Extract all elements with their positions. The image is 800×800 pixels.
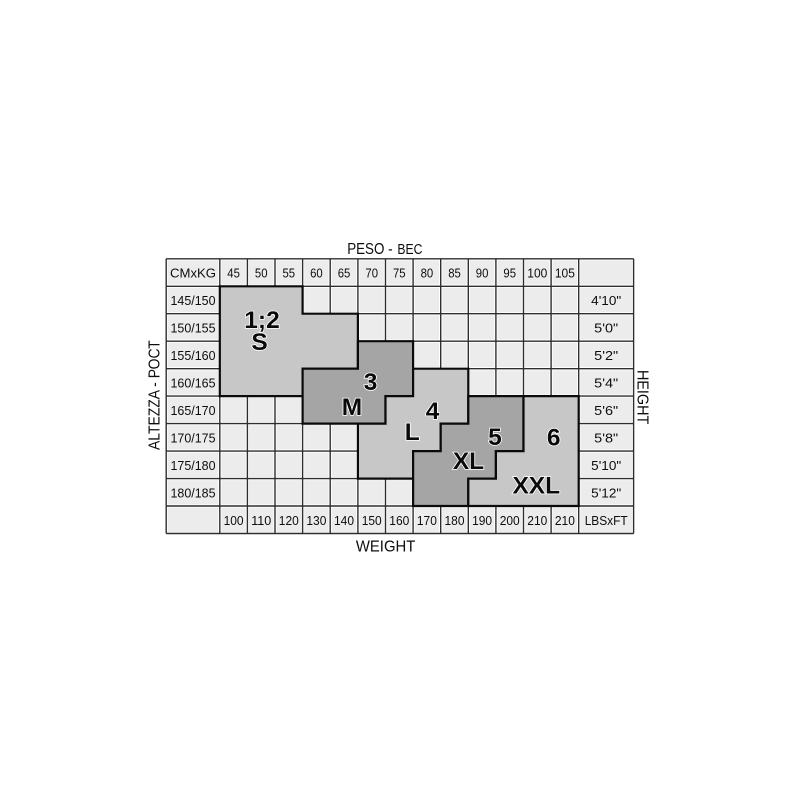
svg-text:55: 55 bbox=[283, 266, 296, 281]
svg-text:CMxKG: CMxKG bbox=[170, 266, 216, 281]
svg-text:5'0": 5'0" bbox=[594, 321, 618, 336]
svg-text:170: 170 bbox=[417, 513, 437, 528]
svg-text:LBSxFT: LBSxFT bbox=[585, 513, 628, 528]
svg-text:80: 80 bbox=[421, 266, 434, 281]
svg-text:5'6": 5'6" bbox=[594, 403, 618, 418]
svg-text:PESO -: PESO - bbox=[347, 241, 392, 258]
svg-text:175/180: 175/180 bbox=[171, 458, 216, 473]
svg-text:190: 190 bbox=[472, 513, 492, 528]
svg-text:6: 6 bbox=[547, 424, 561, 451]
svg-text:120: 120 bbox=[279, 513, 299, 528]
svg-text:145/150: 145/150 bbox=[171, 293, 216, 308]
svg-text:5'2": 5'2" bbox=[594, 348, 618, 363]
svg-text:50: 50 bbox=[255, 266, 268, 281]
svg-text:45: 45 bbox=[227, 266, 240, 281]
svg-text:5'8": 5'8" bbox=[594, 431, 618, 446]
svg-text:L: L bbox=[405, 419, 420, 446]
svg-text:5'10": 5'10" bbox=[591, 458, 621, 473]
svg-text:M: M bbox=[342, 394, 362, 421]
svg-text:150/155: 150/155 bbox=[171, 321, 216, 336]
svg-text:ALTEZZA - РОСТ: ALTEZZA - РОСТ bbox=[147, 340, 164, 450]
svg-text:160/165: 160/165 bbox=[171, 376, 216, 391]
svg-text:90: 90 bbox=[476, 266, 489, 281]
svg-text:70: 70 bbox=[365, 266, 378, 281]
svg-text:210: 210 bbox=[527, 513, 547, 528]
svg-text:165/170: 165/170 bbox=[171, 403, 216, 418]
svg-text:ВЕС: ВЕС bbox=[397, 242, 422, 258]
svg-text:5: 5 bbox=[488, 424, 502, 451]
svg-text:HEIGHT: HEIGHT bbox=[634, 370, 651, 424]
svg-text:60: 60 bbox=[310, 266, 323, 281]
svg-text:180/185: 180/185 bbox=[171, 485, 216, 500]
svg-text:130: 130 bbox=[306, 513, 326, 528]
svg-text:100: 100 bbox=[224, 513, 244, 528]
svg-text:110: 110 bbox=[251, 513, 271, 528]
svg-text:85: 85 bbox=[448, 266, 461, 281]
svg-text:100: 100 bbox=[527, 266, 547, 281]
svg-text:140: 140 bbox=[334, 513, 354, 528]
svg-text:210: 210 bbox=[555, 513, 575, 528]
svg-text:95: 95 bbox=[503, 266, 516, 281]
svg-text:XL: XL bbox=[453, 448, 484, 475]
svg-text:5'12": 5'12" bbox=[591, 485, 621, 500]
svg-text:XXL: XXL bbox=[512, 473, 560, 500]
svg-text:WEIGHT: WEIGHT bbox=[356, 538, 416, 555]
svg-text:180: 180 bbox=[445, 513, 465, 528]
svg-text:155/160: 155/160 bbox=[171, 348, 216, 363]
svg-text:75: 75 bbox=[393, 266, 406, 281]
svg-text:S: S bbox=[251, 329, 267, 356]
svg-text:3: 3 bbox=[364, 369, 378, 396]
svg-text:5'4": 5'4" bbox=[594, 376, 618, 391]
svg-text:170/175: 170/175 bbox=[171, 431, 216, 446]
svg-text:4'10": 4'10" bbox=[591, 293, 621, 308]
svg-text:200: 200 bbox=[500, 513, 520, 528]
svg-text:150: 150 bbox=[362, 513, 382, 528]
svg-text:160: 160 bbox=[389, 513, 409, 528]
svg-text:65: 65 bbox=[338, 266, 351, 281]
svg-text:4: 4 bbox=[426, 398, 440, 425]
svg-text:105: 105 bbox=[555, 266, 575, 281]
